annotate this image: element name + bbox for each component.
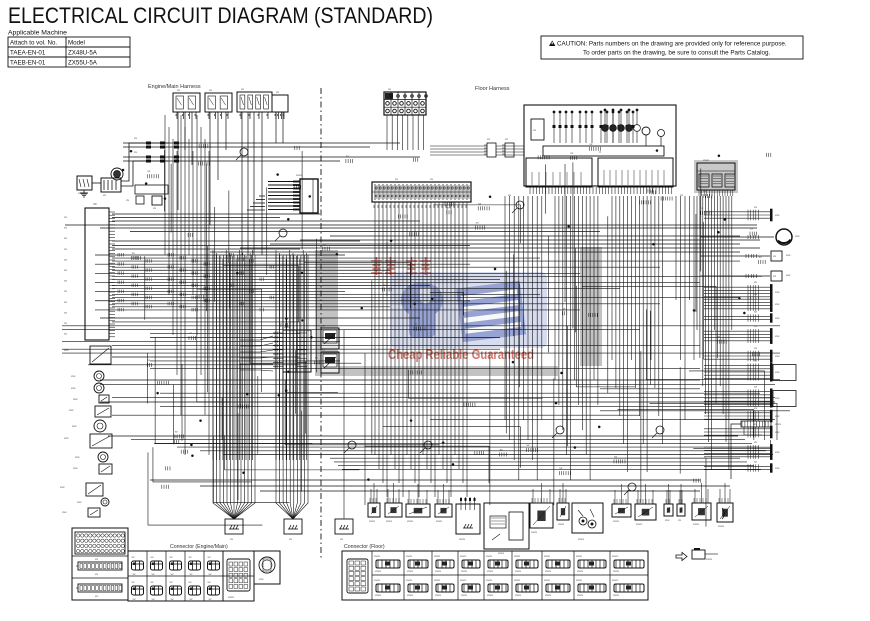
- svg-text:xxxx: xxxx: [514, 554, 521, 558]
- svg-text:xx: xx: [754, 422, 758, 426]
- svg-text:xxx: xxx: [786, 273, 791, 277]
- svg-text:xxx: xxx: [775, 334, 780, 338]
- svg-text:xxxx: xxxx: [487, 569, 494, 573]
- svg-text:ZX48U-5A: ZX48U-5A: [68, 50, 98, 57]
- svg-text:xxxx: xxxx: [386, 519, 393, 523]
- svg-text:xxxx: xxxx: [374, 578, 381, 582]
- svg-text:xxx: xxx: [775, 316, 780, 320]
- svg-text:xxx: xxx: [775, 396, 780, 400]
- svg-text:xx: xx: [151, 580, 155, 584]
- svg-text:xxxx: xxxx: [612, 554, 619, 558]
- svg-text:xx: xx: [64, 236, 68, 240]
- svg-text:xx: xx: [346, 154, 350, 158]
- svg-text:xx: xx: [239, 252, 243, 256]
- svg-text:xxx: xxx: [77, 500, 82, 504]
- svg-text:xxx: xxx: [775, 466, 780, 470]
- svg-text:xxxx: xxxx: [577, 593, 584, 597]
- svg-text:xx: xx: [189, 580, 193, 584]
- svg-text:xx: xx: [209, 572, 213, 576]
- svg-text:xxxx: xxxx: [545, 593, 552, 597]
- svg-text:xx: xx: [754, 385, 758, 389]
- svg-text:xx: xx: [754, 292, 758, 296]
- svg-text:TAEA-EN-01: TAEA-EN-01: [10, 50, 46, 57]
- svg-text:xxx: xxx: [64, 348, 69, 352]
- svg-text:xxx: xxx: [775, 450, 780, 454]
- svg-text:xxxx: xxxx: [461, 569, 468, 573]
- svg-text:xx: xx: [171, 572, 175, 576]
- svg-text:xx: xx: [153, 206, 157, 210]
- svg-text:xx: xx: [414, 322, 418, 326]
- svg-text:xxx: xxx: [64, 436, 69, 440]
- svg-text:xxx: xxx: [72, 424, 77, 428]
- svg-text:xxxx: xxxx: [435, 593, 442, 597]
- svg-text:Attach to vol. No.: Attach to vol. No.: [10, 40, 57, 47]
- svg-text:xx: xx: [754, 280, 758, 284]
- svg-text:xx: xx: [700, 206, 704, 210]
- svg-text:xx: xx: [152, 572, 156, 576]
- svg-text:xx: xx: [132, 251, 136, 255]
- svg-text:xxx: xxx: [775, 302, 780, 306]
- svg-text:xxxx: xxxx: [375, 593, 382, 597]
- svg-text:xxxx: xxxx: [577, 569, 584, 573]
- svg-text:xx: xx: [754, 324, 758, 328]
- svg-text:xx: xx: [152, 597, 156, 601]
- svg-text:xx: xx: [570, 151, 574, 155]
- svg-text:xxxx: xxxx: [460, 578, 467, 582]
- svg-text:xxxx: xxxx: [407, 593, 414, 597]
- svg-text:xx: xx: [478, 201, 482, 205]
- svg-text:xx: xx: [95, 572, 99, 576]
- svg-text:xxxx: xxxx: [531, 530, 538, 534]
- svg-text:xxx: xxx: [73, 397, 78, 401]
- svg-text:xx: xx: [614, 454, 618, 458]
- svg-text:xx: xx: [476, 221, 480, 225]
- svg-text:xxxx: xxxx: [558, 522, 565, 526]
- svg-text:xxxx: xxxx: [613, 593, 620, 597]
- svg-text:xx: xx: [170, 580, 174, 584]
- svg-text:xxx: xxx: [69, 408, 74, 412]
- svg-text:xxxx: xxxx: [374, 554, 381, 558]
- svg-text:xxxx: xxxx: [636, 522, 643, 526]
- svg-text:xxxx: xxxx: [514, 578, 521, 582]
- svg-text:xxxx: xxxx: [486, 578, 493, 582]
- svg-text:xx: xx: [241, 87, 245, 91]
- svg-text:xx: xx: [64, 226, 68, 230]
- svg-text:xx: xx: [754, 346, 758, 350]
- svg-text:xx: xx: [754, 460, 758, 464]
- svg-text:xx: xx: [315, 355, 319, 359]
- svg-text:xxxx: xxxx: [407, 569, 414, 573]
- svg-text:xx: xx: [678, 518, 682, 522]
- svg-text:xx: xx: [500, 447, 504, 451]
- svg-text:xxx: xxx: [775, 290, 780, 294]
- svg-text:xxxx: xxxx: [228, 595, 235, 599]
- svg-text:xxx: xxx: [775, 354, 780, 358]
- svg-text:xx: xx: [103, 193, 107, 197]
- svg-text:xxxx: xxxx: [544, 554, 551, 558]
- svg-text:xx: xx: [189, 331, 193, 335]
- svg-text:xxxx: xxxx: [434, 554, 441, 558]
- svg-text:Applicable Machine: Applicable Machine: [8, 30, 67, 37]
- svg-text:xx: xx: [93, 202, 97, 206]
- svg-text:xxxx: xxxx: [703, 158, 710, 162]
- svg-text:xxxx: xxxx: [460, 554, 467, 558]
- svg-text:xxxx: xxxx: [486, 554, 493, 558]
- svg-text:xxxx: xxxx: [613, 519, 620, 523]
- svg-text:xxx: xxx: [775, 213, 780, 217]
- svg-text:Model: Model: [68, 40, 85, 47]
- svg-text:xxxx: xxxx: [407, 519, 414, 523]
- svg-text:xxxx: xxxx: [718, 524, 725, 528]
- svg-text:xx: xx: [132, 555, 136, 559]
- svg-text:xxxx: xxxx: [693, 522, 700, 526]
- svg-text:xx: xx: [505, 137, 509, 141]
- svg-text:xx: xx: [754, 359, 758, 363]
- svg-text:xx: xx: [64, 300, 68, 304]
- svg-text:xx: xx: [190, 597, 194, 601]
- svg-text:xxxx: xxxx: [435, 569, 442, 573]
- svg-text:xx: xx: [717, 335, 721, 339]
- svg-text:xxxx: xxxx: [487, 593, 494, 597]
- svg-text:xx: xx: [395, 177, 399, 181]
- svg-text:xxxx: xxxx: [515, 593, 522, 597]
- svg-text:xx: xx: [533, 128, 537, 132]
- svg-text:xxxx: xxxx: [436, 519, 443, 523]
- svg-text:xxx: xxx: [775, 370, 780, 374]
- svg-text:xxxx: xxxx: [296, 173, 303, 177]
- svg-text:xx: xx: [382, 282, 386, 286]
- svg-text:xx: xx: [759, 255, 763, 259]
- svg-text:xx: xx: [64, 247, 68, 251]
- svg-text:xx: xx: [388, 87, 392, 91]
- svg-text:xx: xx: [209, 597, 213, 601]
- svg-text:xx: xx: [289, 537, 293, 541]
- svg-text:xxx: xxx: [775, 414, 780, 418]
- svg-text:Connector (Engine/Main): Connector (Engine/Main): [170, 544, 228, 550]
- svg-text:xxxx: xxxx: [461, 593, 468, 597]
- svg-text:xxx: xxx: [73, 466, 78, 470]
- svg-text:ZX55U-5A: ZX55U-5A: [68, 60, 98, 67]
- svg-text:xxxx: xxxx: [369, 519, 376, 523]
- svg-text:xx: xx: [527, 443, 531, 447]
- svg-text:xxx: xxx: [60, 485, 65, 489]
- svg-text:Connector (Floor): Connector (Floor): [344, 544, 385, 550]
- svg-text:xx: xx: [754, 310, 758, 314]
- svg-text:xx: xx: [430, 177, 434, 181]
- svg-text:xx: xx: [64, 332, 68, 336]
- svg-text:xx: xx: [487, 137, 491, 141]
- svg-text:xx: xx: [64, 279, 68, 283]
- svg-text:xx: xx: [147, 169, 151, 173]
- svg-text:xx: xx: [134, 136, 138, 140]
- svg-text:xxx: xxx: [795, 234, 800, 238]
- svg-text:xx: xx: [133, 597, 137, 601]
- svg-text:xxxx: xxxx: [576, 554, 583, 558]
- svg-text:xxx: xxx: [259, 577, 264, 581]
- svg-text:xx: xx: [559, 466, 563, 470]
- svg-text:xx: xx: [151, 555, 155, 559]
- svg-text:xx: xx: [64, 268, 68, 272]
- svg-text:To order parts on the drawing,: To order parts on the drawing, be sure t…: [583, 50, 771, 57]
- svg-text:xx: xx: [133, 572, 137, 576]
- svg-text:xxxx: xxxx: [459, 537, 466, 541]
- svg-text:xxxx: xxxx: [375, 569, 382, 573]
- svg-text:xxxx: xxxx: [613, 569, 620, 573]
- svg-text:xx: xx: [189, 555, 193, 559]
- svg-text:xx: xx: [340, 537, 344, 541]
- svg-text:xx: xx: [754, 440, 758, 444]
- svg-text:xx: xx: [177, 88, 181, 92]
- svg-text:xxxx: xxxx: [498, 551, 505, 555]
- svg-text:Floor Harness: Floor Harness: [475, 86, 510, 92]
- svg-text:xx: xx: [447, 205, 451, 209]
- svg-text:xx: xx: [134, 150, 138, 154]
- svg-text:ELECTRICAL CIRCUIT DIAGRAM (ST: ELECTRICAL CIRCUIT DIAGRAM (STANDARD): [8, 3, 433, 28]
- svg-text:xx: xx: [703, 189, 707, 193]
- svg-text:xxxx: xxxx: [576, 578, 583, 582]
- svg-text:xx: xx: [750, 227, 754, 231]
- svg-text:xxx: xxx: [775, 430, 780, 434]
- svg-text:xxx: xxx: [786, 253, 791, 257]
- svg-text:xx: xx: [171, 597, 175, 601]
- svg-text:xx: xx: [323, 242, 327, 246]
- svg-text:xx: xx: [175, 429, 179, 433]
- svg-text:xxx: xxx: [75, 455, 80, 459]
- svg-text:xx: xx: [773, 274, 777, 278]
- svg-text:xx: xx: [589, 142, 593, 146]
- svg-text:TAEB-EN-01: TAEB-EN-01: [10, 60, 46, 67]
- svg-text:xxx: xxx: [665, 518, 670, 522]
- svg-text:Engine/Main Harness: Engine/Main Harness: [148, 84, 201, 90]
- svg-text:xx: xx: [209, 88, 213, 92]
- svg-text:xxxx: xxxx: [578, 537, 585, 541]
- svg-text:xx: xx: [95, 557, 99, 561]
- svg-text:xx: xx: [64, 321, 68, 325]
- svg-text:xxxx: xxxx: [406, 578, 413, 582]
- svg-text:xxxx: xxxx: [545, 569, 552, 573]
- svg-text:xxxx: xxxx: [775, 422, 782, 426]
- svg-text:xxx: xxx: [62, 510, 67, 514]
- svg-text:xxxx: xxxx: [544, 578, 551, 582]
- svg-text:xx: xx: [64, 289, 68, 293]
- svg-text:xx: xx: [132, 580, 136, 584]
- svg-text:xx: xx: [95, 594, 99, 598]
- svg-text:xx: xx: [276, 90, 280, 94]
- svg-text:xx: xx: [170, 555, 174, 559]
- svg-text:xx: xx: [190, 572, 194, 576]
- svg-text:xxxx: xxxx: [515, 569, 522, 573]
- svg-text:xx: xx: [64, 310, 68, 314]
- svg-text:xx: xx: [651, 185, 655, 189]
- svg-text:xxxx: xxxx: [406, 554, 413, 558]
- svg-text:xx: xx: [64, 257, 68, 261]
- svg-text:xx: xx: [773, 254, 777, 258]
- svg-text:xxx: xxx: [71, 374, 76, 378]
- svg-text:xx: xx: [230, 537, 234, 541]
- svg-text:xxx: xxx: [71, 386, 76, 390]
- svg-text:xx: xx: [126, 198, 130, 202]
- svg-text:xx: xx: [562, 306, 566, 310]
- svg-text:xx: xx: [208, 580, 212, 584]
- svg-text:xxxx: xxxx: [612, 578, 619, 582]
- svg-text:xxxx: xxxx: [706, 557, 713, 561]
- svg-text:xx: xx: [208, 555, 212, 559]
- svg-text:xx: xx: [64, 215, 68, 219]
- svg-text:CAUTION: Parts numbers on the: CAUTION: Parts numbers on the drawing ar…: [557, 41, 787, 48]
- svg-text:xxxx: xxxx: [434, 578, 441, 582]
- svg-text:xx: xx: [754, 205, 758, 209]
